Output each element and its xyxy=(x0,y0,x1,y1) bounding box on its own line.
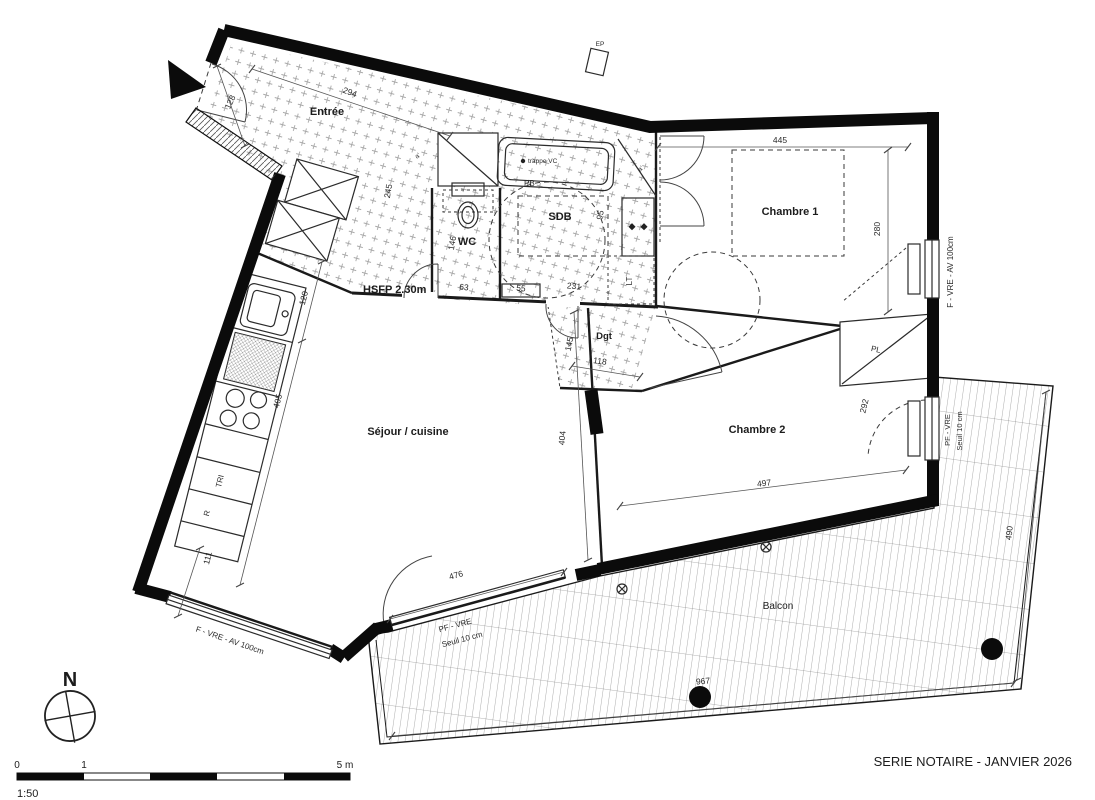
dim-445: 445 xyxy=(773,135,787,145)
dim-111: 111 xyxy=(201,550,214,565)
lt-label: LT xyxy=(625,277,634,286)
room-label-chambre2: Chambre 2 xyxy=(729,424,786,436)
ep-duct xyxy=(586,48,609,75)
room-label-balcon: Balcon xyxy=(763,601,794,612)
scale-ratio: 1:50 xyxy=(17,788,38,800)
scale-tick-5: 5 m xyxy=(337,760,354,771)
window-chambre2-right xyxy=(908,397,939,460)
pl-closet xyxy=(840,314,932,386)
pb-label: PB xyxy=(524,179,535,188)
dim-231: 231 xyxy=(566,280,581,291)
floor-plan-svg: Entrée SDB WC Chambre 1 Chambre 2 Séjour… xyxy=(0,0,1095,800)
hsfp-note: HSFP 2.30m xyxy=(363,284,427,296)
room-label-dgt: Dgt xyxy=(596,331,613,342)
dim-967: 967 xyxy=(695,675,710,686)
entrance-arrow xyxy=(168,60,206,99)
north-compass: N xyxy=(40,669,100,747)
series-title: SERIE NOTAIRE - JANVIER 2026 xyxy=(874,754,1072,769)
dim-405: 405 xyxy=(271,393,284,409)
dim-490: 490 xyxy=(1003,525,1015,541)
floor-plan-page: Entrée SDB WC Chambre 1 Chambre 2 Séjour… xyxy=(0,0,1095,800)
window-chambre1-right xyxy=(908,240,939,298)
dim-120: 120 xyxy=(297,290,310,306)
dim-292: 292 xyxy=(857,398,870,414)
room-label-sejour: Séjour / cuisine xyxy=(367,426,448,438)
trappe-vc-marker xyxy=(521,159,525,163)
dim-55: 55 xyxy=(516,283,527,294)
window-label-seuil-right: Seuil 10 cm xyxy=(955,411,964,450)
scale-bar: 0 1 5 m 1:50 xyxy=(14,760,353,800)
dim-404: 404 xyxy=(556,430,567,445)
dim-476: 476 xyxy=(448,568,465,581)
room-label-chambre1: Chambre 1 xyxy=(762,206,819,218)
ep-label: EP xyxy=(596,41,605,48)
window-label-pfvre-right: PF - VRE xyxy=(943,414,952,446)
dim-280: 280 xyxy=(872,222,882,236)
room-label-entree: Entrée xyxy=(310,106,344,118)
dim-118: 118 xyxy=(593,355,608,367)
north-label: N xyxy=(63,669,77,691)
balcony-post xyxy=(981,638,1003,660)
scale-tick-1: 1 xyxy=(81,760,87,771)
dim-63: 63 xyxy=(459,282,470,293)
window-label-fvre-right: F - VRE - AV 100cm xyxy=(946,236,955,308)
room-label-wc: WC xyxy=(458,236,476,248)
dim-497: 497 xyxy=(756,477,772,489)
balcony-post xyxy=(689,686,711,708)
room-label-sdb: SDB xyxy=(548,211,571,223)
trappe-vc-label: trappe VC xyxy=(528,158,558,165)
scale-tick-0: 0 xyxy=(14,760,20,771)
